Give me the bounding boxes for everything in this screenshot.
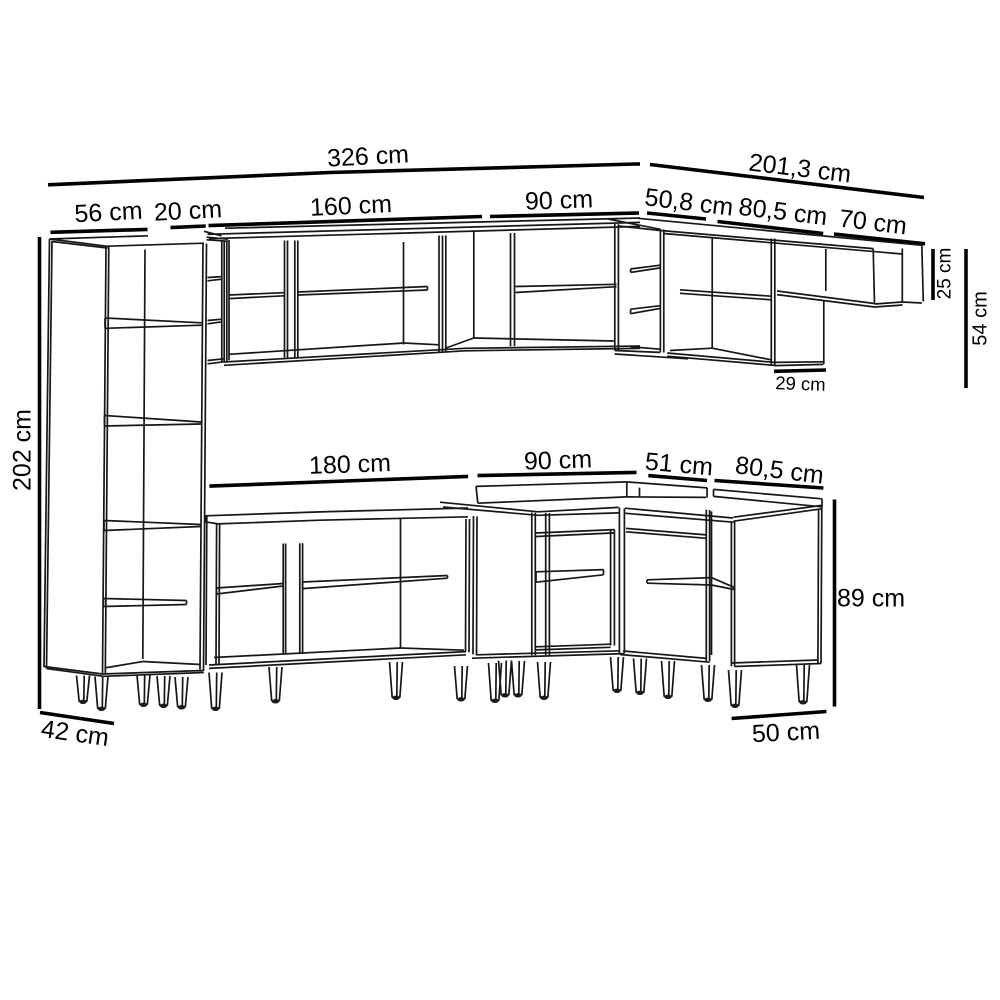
svg-text:25 cm: 25 cm [935, 248, 956, 300]
svg-text:90 cm: 90 cm [523, 445, 592, 475]
svg-text:326 cm: 326 cm [326, 140, 409, 172]
svg-text:160 cm: 160 cm [309, 190, 392, 222]
svg-text:180 cm: 180 cm [309, 449, 392, 480]
svg-text:51 cm: 51 cm [644, 448, 714, 482]
svg-text:202 cm: 202 cm [9, 409, 37, 491]
svg-text:20 cm: 20 cm [153, 195, 222, 227]
svg-text:89 cm: 89 cm [837, 585, 905, 613]
svg-text:56 cm: 56 cm [74, 197, 143, 229]
svg-text:29 cm: 29 cm [775, 372, 826, 395]
svg-text:50 cm: 50 cm [751, 717, 820, 749]
svg-text:90 cm: 90 cm [524, 185, 593, 215]
svg-text:54 cm: 54 cm [970, 291, 992, 345]
